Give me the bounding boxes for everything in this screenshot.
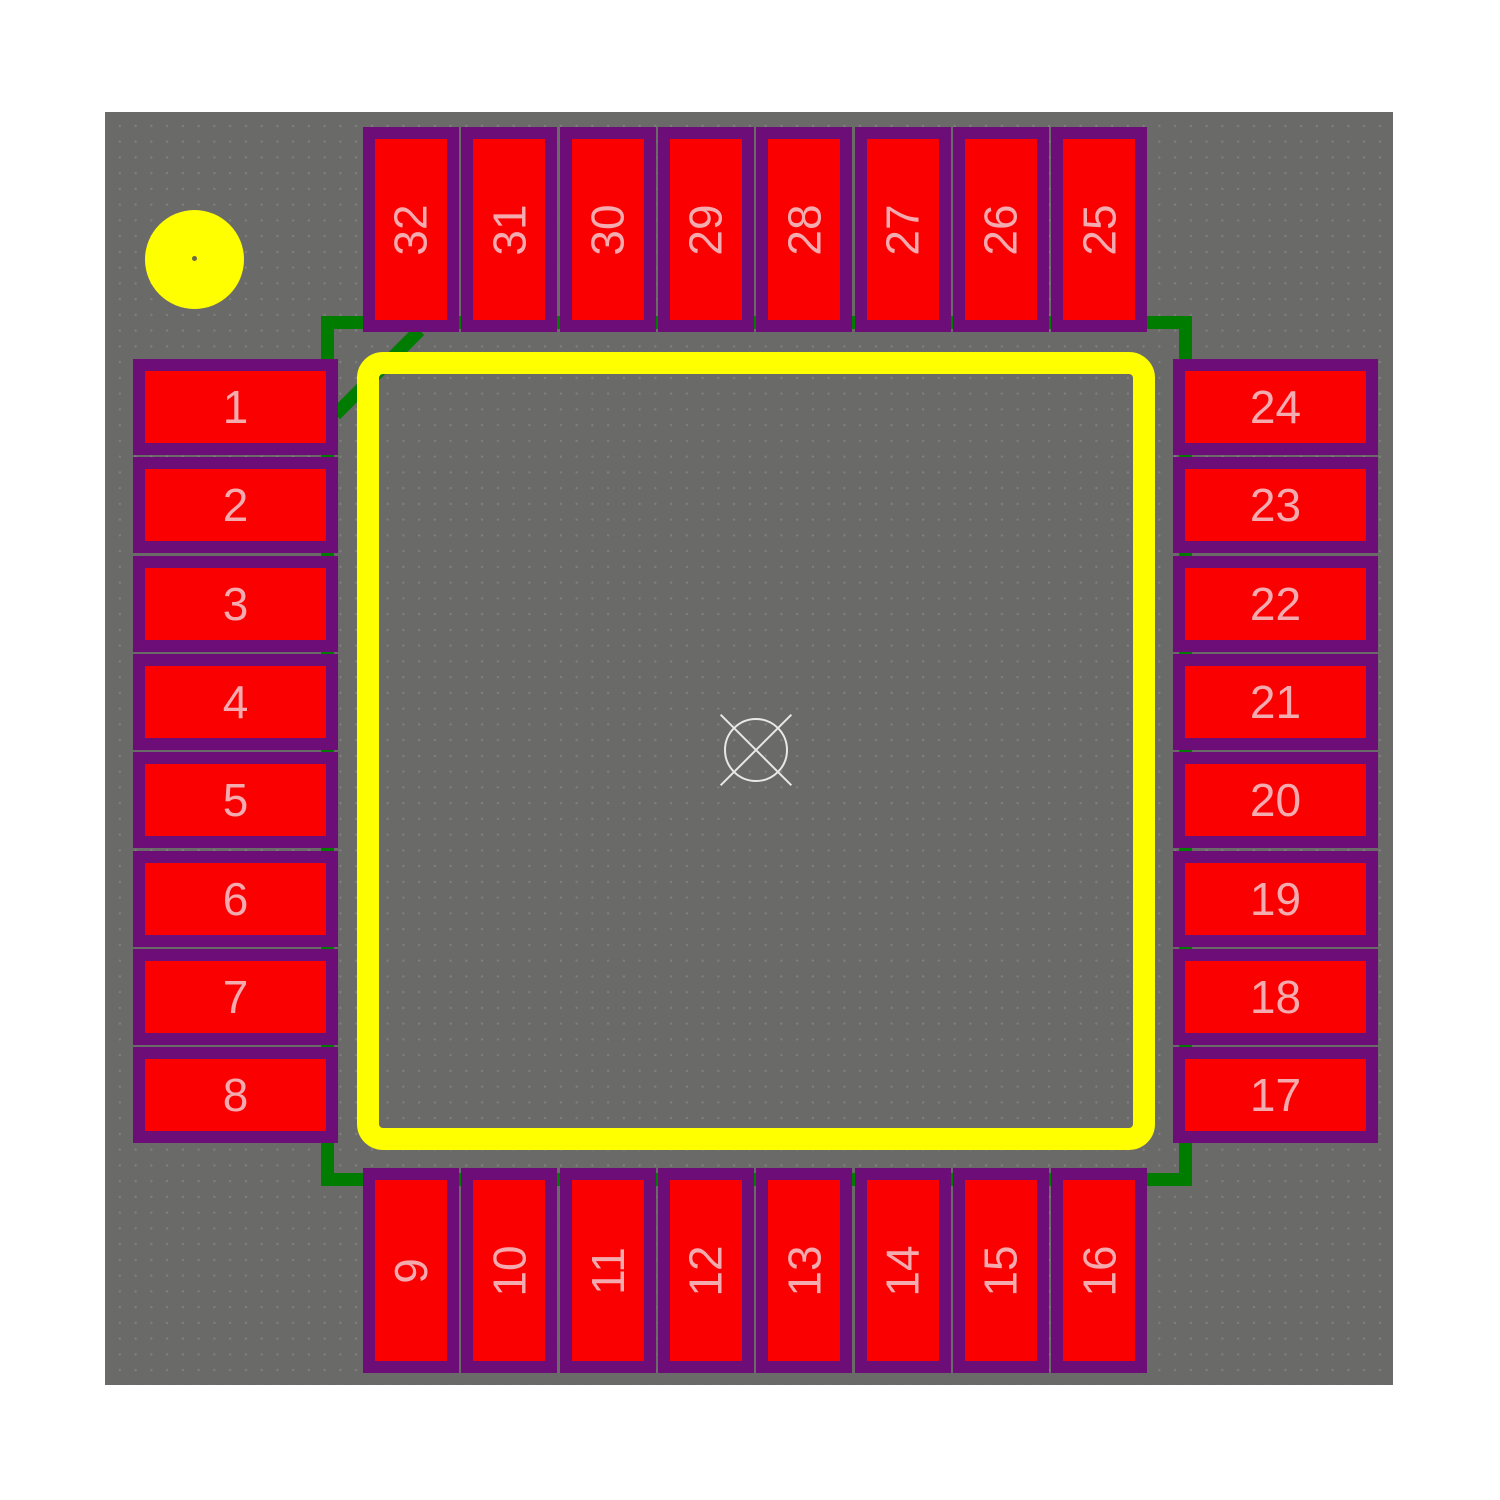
pad-26[interactable]: 26 [953, 127, 1049, 332]
pad-copper: 23 [1185, 469, 1366, 541]
pad-copper: 31 [473, 139, 545, 320]
pad-number: 25 [1076, 204, 1122, 255]
pad-6[interactable]: 6 [133, 851, 338, 947]
pad-copper: 15 [965, 1180, 1037, 1361]
pad-18[interactable]: 18 [1173, 949, 1378, 1045]
pad-27[interactable]: 27 [855, 127, 951, 332]
pad-number: 23 [1250, 482, 1301, 528]
pad-number: 14 [879, 1245, 925, 1296]
pad-number: 16 [1076, 1245, 1122, 1296]
pad-1[interactable]: 1 [133, 359, 338, 455]
pad-number: 13 [781, 1245, 827, 1296]
pad-copper: 30 [572, 139, 644, 320]
pad-number: 21 [1250, 679, 1301, 725]
pcb-canvas[interactable]: 1234567832313029282726252423222120191817… [105, 112, 1393, 1385]
pad-number: 27 [879, 204, 925, 255]
pin1-indicator-circle-icon[interactable] [145, 210, 244, 309]
pad-number: 5 [223, 777, 249, 823]
pad-copper: 20 [1185, 764, 1366, 836]
pad-number: 28 [781, 204, 827, 255]
pad-copper: 22 [1185, 568, 1366, 640]
pad-copper: 6 [145, 863, 326, 935]
pad-copper: 29 [670, 139, 742, 320]
pad-copper: 13 [768, 1180, 840, 1361]
pad-copper: 2 [145, 469, 326, 541]
pad-28[interactable]: 28 [756, 127, 852, 332]
pad-number: 12 [683, 1245, 729, 1296]
pad-copper: 28 [768, 139, 840, 320]
pad-10[interactable]: 10 [461, 1168, 557, 1373]
pad-copper: 24 [1185, 371, 1366, 443]
pad-number: 8 [223, 1072, 249, 1118]
pad-copper: 9 [375, 1180, 447, 1361]
pad-copper: 12 [670, 1180, 742, 1361]
pad-30[interactable]: 30 [560, 127, 656, 332]
pad-9[interactable]: 9 [363, 1168, 459, 1373]
pad-25[interactable]: 25 [1051, 127, 1147, 332]
pad-17[interactable]: 17 [1173, 1047, 1378, 1143]
pad-copper: 7 [145, 961, 326, 1033]
pad-number: 7 [223, 974, 249, 1020]
pad-20[interactable]: 20 [1173, 752, 1378, 848]
pad-21[interactable]: 21 [1173, 654, 1378, 750]
pad-number: 3 [223, 581, 249, 627]
pad-copper: 10 [473, 1180, 545, 1361]
pad-number: 18 [1250, 974, 1301, 1020]
pad-number: 30 [585, 204, 631, 255]
pad-number: 10 [486, 1245, 532, 1296]
pad-copper: 18 [1185, 961, 1366, 1033]
pad-15[interactable]: 15 [953, 1168, 1049, 1373]
pad-number: 19 [1250, 876, 1301, 922]
pad-number: 4 [223, 679, 249, 725]
pad-number: 15 [978, 1245, 1024, 1296]
pad-copper: 19 [1185, 863, 1366, 935]
pad-copper: 14 [867, 1180, 939, 1361]
pad-number: 17 [1250, 1072, 1301, 1118]
pad-5[interactable]: 5 [133, 752, 338, 848]
pad-3[interactable]: 3 [133, 556, 338, 652]
page: { "pads": { "left": ["1","2","3","4","5"… [0, 0, 1500, 1500]
pad-copper: 21 [1185, 666, 1366, 738]
pad-number: 26 [978, 204, 1024, 255]
pad-13[interactable]: 13 [756, 1168, 852, 1373]
pad-32[interactable]: 32 [363, 127, 459, 332]
pad-31[interactable]: 31 [461, 127, 557, 332]
pad-copper: 5 [145, 764, 326, 836]
pad-24[interactable]: 24 [1173, 359, 1378, 455]
pad-copper: 11 [572, 1180, 644, 1361]
pad-16[interactable]: 16 [1051, 1168, 1147, 1373]
pad-14[interactable]: 14 [855, 1168, 951, 1373]
pad-copper: 32 [375, 139, 447, 320]
pad-22[interactable]: 22 [1173, 556, 1378, 652]
pad-copper: 3 [145, 568, 326, 640]
pad-11[interactable]: 11 [560, 1168, 656, 1373]
pad-29[interactable]: 29 [658, 127, 754, 332]
pad-copper: 4 [145, 666, 326, 738]
pad-number: 6 [223, 876, 249, 922]
pad-number: 9 [388, 1258, 434, 1284]
pad-number: 29 [683, 204, 729, 255]
pad-copper: 1 [145, 371, 326, 443]
pad-number: 22 [1250, 581, 1301, 627]
pad-number: 1 [223, 384, 249, 430]
pad-copper: 17 [1185, 1059, 1366, 1131]
pad-number: 2 [223, 482, 249, 528]
pad-copper: 26 [965, 139, 1037, 320]
pad-4[interactable]: 4 [133, 654, 338, 750]
pad-2[interactable]: 2 [133, 457, 338, 553]
pad-copper: 25 [1063, 139, 1135, 320]
pad-copper: 8 [145, 1059, 326, 1131]
pad-number: 24 [1250, 384, 1301, 430]
pad-23[interactable]: 23 [1173, 457, 1378, 553]
pad-number: 32 [388, 204, 434, 255]
pad-7[interactable]: 7 [133, 949, 338, 1045]
pad-copper: 16 [1063, 1180, 1135, 1361]
pad-12[interactable]: 12 [658, 1168, 754, 1373]
circle-center-dot [192, 256, 197, 261]
pad-number: 20 [1250, 777, 1301, 823]
pad-number: 31 [486, 204, 532, 255]
pad-8[interactable]: 8 [133, 1047, 338, 1143]
pad-copper: 27 [867, 139, 939, 320]
pad-number: 11 [585, 1247, 631, 1295]
pad-19[interactable]: 19 [1173, 851, 1378, 947]
